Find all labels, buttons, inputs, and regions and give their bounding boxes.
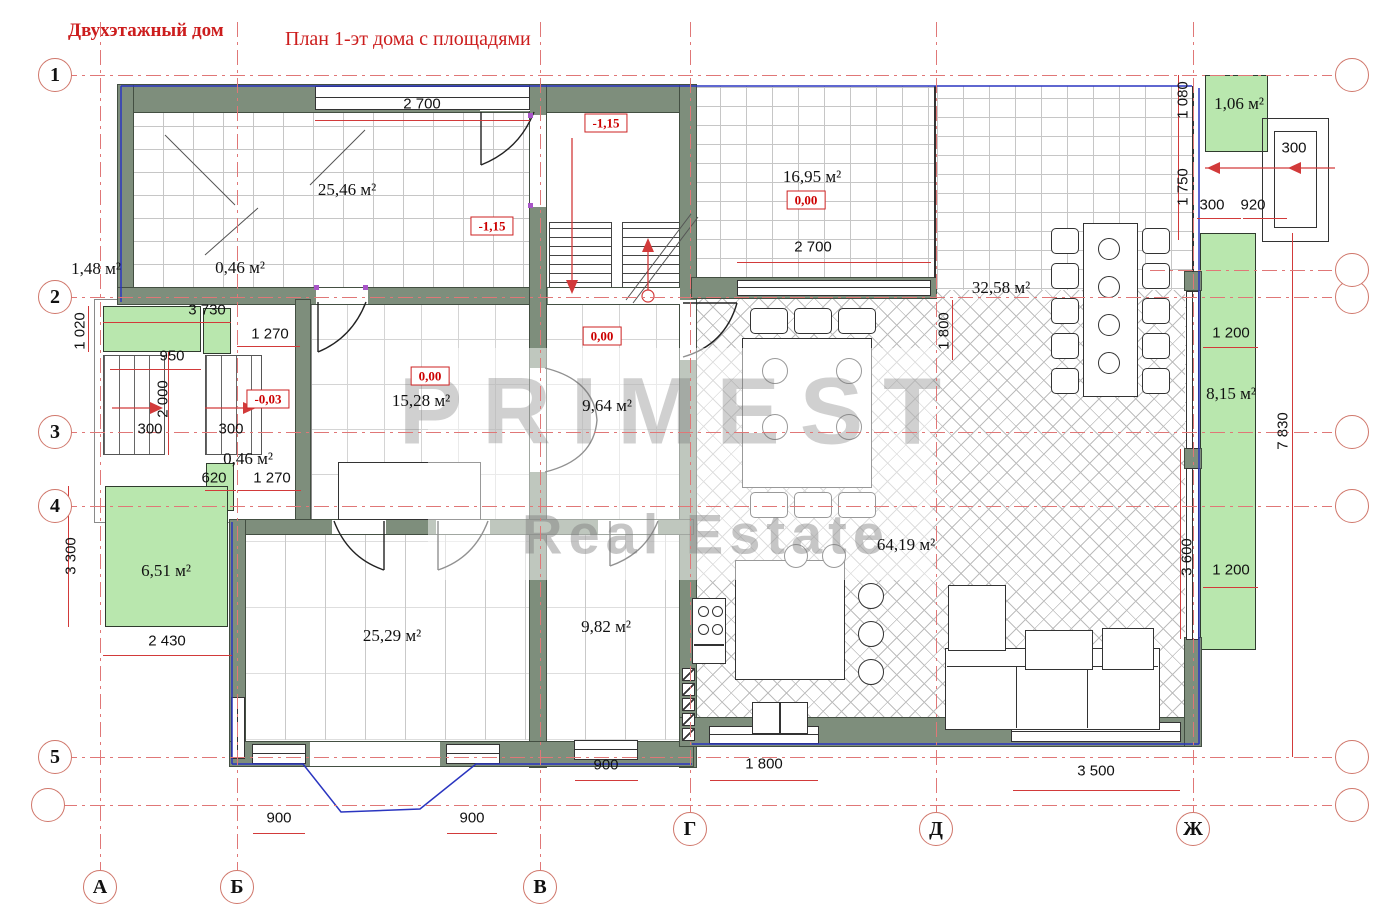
dimension-line bbox=[575, 780, 638, 781]
elevation-mark: 0,00 bbox=[787, 191, 826, 210]
axis-marker-row: 2 bbox=[38, 280, 72, 314]
axis-grid-line bbox=[100, 22, 101, 870]
room-area-label: 16,95 м² bbox=[783, 167, 841, 187]
dimension-line bbox=[103, 655, 232, 656]
dimension-label: 300 bbox=[1199, 197, 1224, 214]
axis-marker-row-left bbox=[31, 788, 65, 822]
elevation-mark: 0,00 bbox=[583, 327, 622, 346]
dimension-line bbox=[110, 369, 201, 370]
dimension-label: 920 bbox=[1240, 197, 1265, 214]
dimension-label-vertical: 2 000 bbox=[155, 380, 172, 418]
room-area-label: 25,46 м² bbox=[318, 180, 376, 200]
room-area-label: 15,28 м² bbox=[392, 391, 450, 411]
dimension-label-vertical: 7 830 bbox=[1275, 412, 1292, 450]
dimension-label-vertical: 3 600 bbox=[1179, 538, 1196, 576]
dimension-label: 3 730 bbox=[188, 302, 226, 319]
axis-marker-row: 1 bbox=[38, 58, 72, 92]
room-area-label: 6,51 м² bbox=[141, 561, 191, 581]
dimension-label-vertical: 1 020 bbox=[72, 312, 89, 350]
room-area-label: 9,82 м² bbox=[581, 617, 631, 637]
room-area-label: 0,46 м² bbox=[215, 258, 265, 278]
room-area-label: 0,46 м² bbox=[223, 449, 273, 469]
axis-grid-line bbox=[62, 432, 1332, 433]
dimension-line bbox=[1292, 233, 1293, 757]
room-area-label: 25,29 м² bbox=[363, 626, 421, 646]
dimension-label-vertical: 3 300 bbox=[63, 537, 80, 575]
dimension-line bbox=[1243, 218, 1287, 219]
dimension-line bbox=[1203, 347, 1258, 348]
axis-marker-row-right bbox=[1335, 788, 1369, 822]
axis-grid-line bbox=[62, 805, 1332, 806]
axis-marker-col: Ж bbox=[1176, 812, 1210, 846]
axis-marker-col: А bbox=[83, 870, 117, 904]
dimension-line bbox=[103, 322, 231, 323]
elevation-mark: -1,15 bbox=[470, 217, 513, 236]
axis-marker-col: Г bbox=[673, 812, 707, 846]
dimension-line bbox=[710, 780, 818, 781]
axis-marker-row: 3 bbox=[38, 415, 72, 449]
axis-grid-line bbox=[62, 297, 1332, 298]
axis-grid-line bbox=[62, 506, 1332, 507]
dimension-label: 620 bbox=[201, 470, 226, 487]
axis-marker-row-right bbox=[1335, 58, 1369, 92]
dimension-label: 1 200 bbox=[1212, 325, 1250, 342]
dimension-label: 900 bbox=[459, 810, 484, 827]
dimension-line bbox=[1013, 790, 1180, 791]
dimension-label: 1 200 bbox=[1212, 562, 1250, 579]
dimension-label-vertical: 1 750 bbox=[1175, 168, 1192, 206]
annotation-layer: 12345АБВГДЖ25,46 м²16,95 м²1,06 м²1,48 м… bbox=[0, 0, 1400, 920]
dimension-label: 300 bbox=[137, 421, 162, 438]
dimension-label: 3 500 bbox=[1077, 763, 1115, 780]
axis-marker-row-right bbox=[1335, 740, 1369, 774]
axis-grid-line bbox=[540, 22, 541, 870]
axis-marker-col: Б bbox=[220, 870, 254, 904]
axis-grid-line bbox=[237, 22, 238, 870]
axis-marker-row-right bbox=[1335, 253, 1369, 287]
room-area-label: 1,48 м² bbox=[71, 259, 121, 279]
elevation-mark: -1,15 bbox=[584, 114, 627, 133]
dimension-line bbox=[253, 833, 305, 834]
dimension-line bbox=[238, 490, 301, 491]
dimension-label-vertical: 1 080 bbox=[1175, 81, 1192, 119]
dimension-label: 900 bbox=[593, 757, 618, 774]
dimension-label-vertical: 1 800 bbox=[936, 312, 953, 350]
axis-grid-line bbox=[1193, 22, 1194, 812]
axis-marker-row-right bbox=[1335, 489, 1369, 523]
axis-marker-row: 5 bbox=[38, 740, 72, 774]
dimension-line bbox=[447, 833, 497, 834]
axis-grid-line bbox=[62, 757, 1332, 758]
axis-marker-col: В bbox=[523, 870, 557, 904]
dimension-label: 950 bbox=[159, 348, 184, 365]
dimension-label: 1 270 bbox=[251, 326, 289, 343]
axis-grid-line bbox=[690, 22, 691, 812]
dimension-line bbox=[315, 120, 530, 121]
dimension-line bbox=[1197, 218, 1241, 219]
axis-grid-line bbox=[62, 75, 1332, 76]
dimension-label: 1 270 bbox=[253, 470, 291, 487]
dimension-label: 2 700 bbox=[403, 96, 441, 113]
axis-marker-row: 4 bbox=[38, 489, 72, 523]
room-area-label: 9,64 м² bbox=[582, 396, 632, 416]
dimension-line bbox=[237, 346, 300, 347]
room-area-label: 64,19 м² bbox=[877, 535, 935, 555]
dimension-line bbox=[205, 490, 236, 491]
axis-marker-col: Д bbox=[919, 812, 953, 846]
elevation-mark: 0,00 bbox=[411, 367, 450, 386]
room-area-label: 32,58 м² bbox=[972, 278, 1030, 298]
dimension-label: 1 800 bbox=[745, 756, 783, 773]
floor-plan-drawing: Двухэтажный дом План 1-эт дома с площадя… bbox=[0, 0, 1400, 920]
axis-grid-line bbox=[936, 22, 937, 812]
dimension-line bbox=[737, 262, 931, 263]
axis-marker-row-right bbox=[1335, 415, 1369, 449]
dimension-label: 2 430 bbox=[148, 633, 186, 650]
dimension-label: 300 bbox=[1281, 140, 1306, 157]
dimension-line bbox=[1203, 587, 1258, 588]
dimension-label: 900 bbox=[266, 810, 291, 827]
elevation-mark: -0,03 bbox=[246, 390, 289, 409]
dimension-label: 2 700 bbox=[794, 239, 832, 256]
axis-grid-line bbox=[1150, 270, 1332, 271]
room-area-label: 8,15 м² bbox=[1206, 384, 1256, 404]
room-area-label: 1,06 м² bbox=[1214, 94, 1264, 114]
dimension-label: 300 bbox=[218, 421, 243, 438]
